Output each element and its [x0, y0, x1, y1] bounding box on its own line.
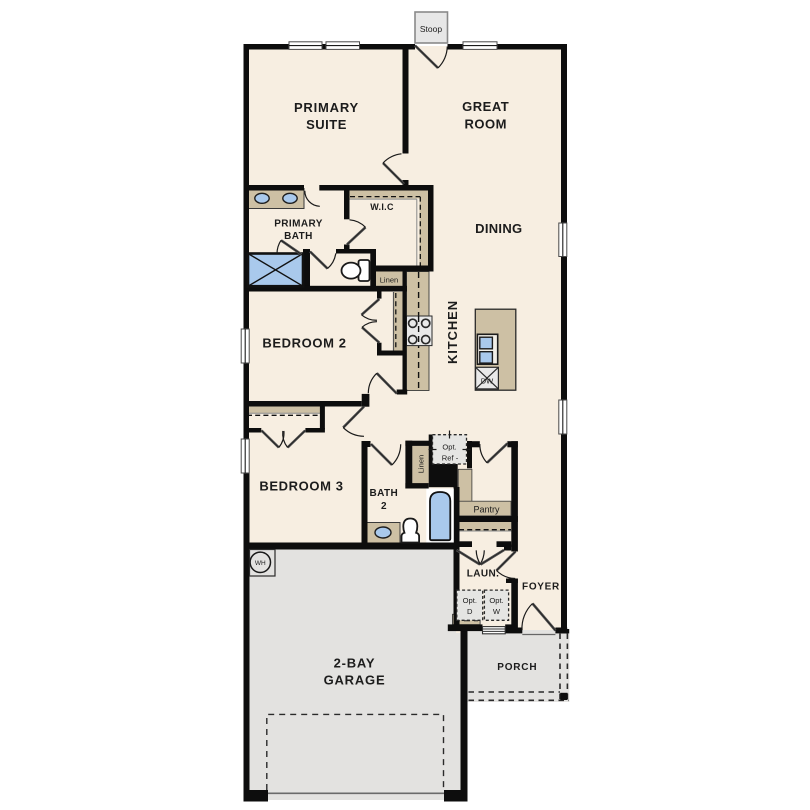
svg-text:PORCH: PORCH [497, 662, 537, 673]
svg-text:Opt.: Opt. [463, 596, 477, 605]
svg-text:FOYER: FOYER [522, 582, 560, 593]
svg-text:KITCHEN: KITCHEN [445, 300, 460, 364]
svg-text:W: W [493, 607, 501, 616]
svg-text:W.I.C: W.I.C [370, 202, 394, 212]
svg-text:BEDROOM 3: BEDROOM 3 [259, 479, 343, 494]
svg-text:Pantry: Pantry [473, 505, 500, 515]
svg-text:Ref -: Ref - [442, 454, 459, 463]
svg-text:GREAT: GREAT [462, 99, 509, 114]
svg-text:Opt.: Opt. [442, 443, 456, 452]
svg-text:DINING: DINING [475, 221, 522, 236]
svg-text:2-BAY: 2-BAY [334, 656, 376, 671]
svg-text:BEDROOM 2: BEDROOM 2 [262, 336, 346, 351]
svg-text:DW: DW [481, 377, 494, 386]
svg-text:PRIMARY: PRIMARY [274, 219, 323, 230]
svg-text:2: 2 [381, 501, 387, 512]
svg-text:ROOM: ROOM [464, 116, 506, 131]
svg-text:Opt.: Opt. [489, 596, 503, 605]
svg-text:GARAGE: GARAGE [324, 673, 386, 688]
svg-text:Linen: Linen [380, 276, 399, 285]
svg-text:Linen: Linen [417, 455, 426, 474]
svg-text:WH: WH [255, 560, 266, 567]
svg-text:Stoop: Stoop [420, 24, 442, 34]
svg-text:D: D [467, 607, 473, 616]
svg-text:PRIMARY: PRIMARY [294, 100, 359, 115]
svg-text:BATH: BATH [284, 231, 313, 242]
svg-text:LAUN.: LAUN. [467, 569, 500, 580]
svg-text:BATH: BATH [369, 488, 398, 499]
svg-text:SUITE: SUITE [306, 117, 347, 132]
